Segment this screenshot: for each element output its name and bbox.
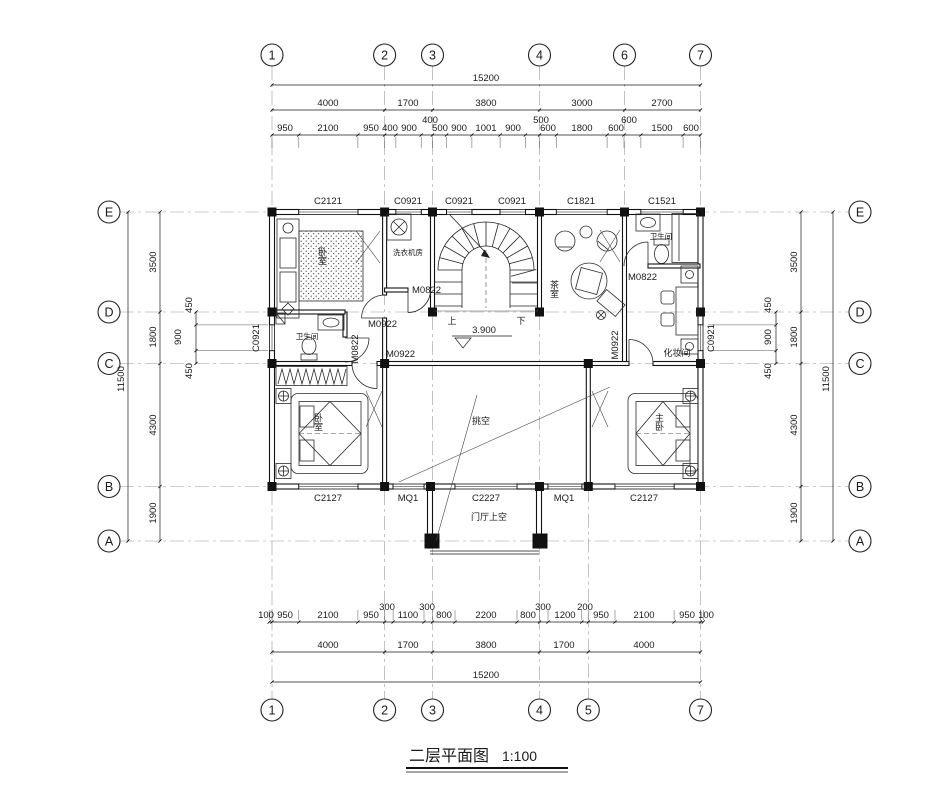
dim: 3500 (148, 251, 159, 272)
room-label-dressing: 化妆间 (663, 347, 690, 358)
room-label-bedroom-top-left: 卧室 (317, 246, 327, 265)
dim: 4300 (148, 414, 159, 435)
room-label-void: 挑空 (472, 415, 490, 426)
door-label: M0822 (412, 285, 441, 296)
dim: 4000 (317, 640, 338, 651)
stair-down-label: 下 (516, 316, 525, 326)
room-label-laundry: 洗衣机房 (393, 247, 423, 257)
dim: 2700 (651, 98, 672, 109)
axis-left-D: D (104, 306, 113, 320)
door-label: M0822 (628, 272, 657, 283)
axis-top-2: 2 (381, 49, 388, 63)
window-label: C0921 (498, 196, 526, 207)
dim: 3800 (475, 98, 496, 109)
dimension-texts: 15200 4000 1700 3800 3000 2700 950 2100 … (116, 73, 832, 681)
dim: 1100 (398, 610, 418, 621)
dim: 950 (363, 610, 379, 621)
dim: 900 (763, 329, 774, 345)
axis-top-3: 3 (429, 49, 436, 63)
door-bedroom-top-left (362, 295, 385, 318)
axis-top-6: 6 (621, 49, 628, 63)
stair-up-label: 上 (447, 316, 456, 326)
door-bedroom-bottom-left (352, 364, 377, 389)
axis-top-1: 1 (269, 49, 276, 63)
window-label: C0921 (706, 324, 717, 352)
dim: 1800 (148, 326, 159, 347)
dim: 600 (683, 123, 699, 134)
floor-plan-canvas: 15200 4000 1700 3800 3000 2700 950 2100 … (0, 0, 941, 799)
dim: 200 (577, 602, 593, 613)
axis-top-4: 4 (536, 49, 543, 63)
dim: 450 (184, 297, 195, 313)
dim: 1700 (397, 640, 418, 651)
dimension-lines (128, 85, 833, 682)
dim: 1900 (789, 502, 800, 523)
dim: 1001 (475, 123, 496, 134)
window-label: C2121 (314, 196, 342, 207)
drawing-title: 二层平面图 1:100 (406, 748, 568, 772)
room-label-master-bedroom: 主卧 (654, 412, 664, 432)
dim: 2200 (475, 610, 496, 621)
dim: 1800 (571, 123, 592, 134)
dim: 300 (379, 602, 395, 613)
window-label: C0921 (251, 324, 262, 352)
axis-right-A: A (856, 535, 865, 549)
dim: 100 (698, 610, 714, 621)
dim: 300 (419, 602, 435, 613)
furniture-dressing-room (661, 266, 698, 354)
dim: 950 (277, 123, 293, 134)
axis-bottom-2: 2 (381, 704, 388, 718)
window-label: C2127 (630, 493, 658, 504)
dim: 950 (679, 610, 695, 621)
staircase (434, 215, 538, 311)
axis-right-B: B (856, 480, 864, 494)
furniture-bedroom-top-left (277, 219, 380, 318)
dim: 900 (401, 123, 417, 134)
dim: 900 (173, 329, 184, 345)
dim: 900 (505, 123, 521, 134)
room-label-tea-room: 茶室 (549, 279, 559, 298)
dim: 3800 (475, 640, 496, 651)
dim: 1200 (554, 610, 575, 621)
room-label-bath-left: 卫生间 (296, 331, 319, 341)
dim: 400 (382, 123, 398, 134)
axis-bottom-3: 3 (429, 704, 436, 718)
elevation-label: 3.900 (472, 325, 496, 336)
dim: 3500 (789, 251, 800, 272)
dim: 450 (763, 297, 774, 313)
door-bath-right (624, 242, 648, 266)
room-label-bedroom-bottom-left: 卧室 (313, 412, 323, 431)
dim: 2100 (317, 610, 338, 621)
furniture-laundry (387, 214, 411, 240)
room-label-bath-right: 卫生间 (650, 231, 673, 241)
dim-bottom-overall: 15200 (473, 670, 499, 681)
grid-lines (120, 66, 849, 699)
door-label: M0922 (610, 330, 621, 359)
stair-annotations: 上 下 3.900 (447, 316, 525, 336)
dim: 4300 (789, 414, 800, 435)
dim: 950 (277, 610, 293, 621)
dim: 1800 (789, 326, 800, 347)
window-label: MQ1 (398, 493, 419, 504)
axis-top-7: 7 (697, 49, 704, 63)
axis-right-C: C (855, 357, 864, 371)
room-label-foyer-void: 门厅上空 (471, 511, 507, 522)
axis-right-E: E (856, 206, 864, 220)
floor-plan-page: 15200 4000 1700 3800 3000 2700 950 2100 … (0, 0, 941, 799)
door-dressing-room (629, 340, 653, 364)
dim: 800 (436, 610, 452, 621)
dim: 950 (363, 123, 379, 134)
axis-bottom-4: 4 (536, 704, 543, 718)
dim: 450 (763, 363, 774, 379)
dim-right-overall: 11500 (821, 366, 832, 392)
axis-left-B: B (105, 480, 113, 494)
dim: 900 (451, 123, 467, 134)
furniture-bedroom-bottom-left (276, 367, 382, 479)
dim: 4000 (317, 98, 338, 109)
window-label: C0921 (445, 196, 473, 207)
door-label: M0922 (368, 319, 397, 330)
window-label: C2127 (314, 493, 342, 504)
dim: 1700 (553, 640, 574, 651)
dim: 100 (258, 610, 274, 621)
furniture-bedroom-bottom-right (592, 389, 698, 479)
dim-top-overall: 15200 (473, 73, 499, 84)
dim: 600 (540, 123, 556, 134)
axis-left-E: E (105, 206, 113, 220)
axis-left-A: A (105, 535, 114, 549)
dim: 1500 (651, 123, 672, 134)
window-label: MQ1 (554, 493, 575, 504)
axis-bottom-1: 1 (269, 704, 276, 718)
dim: 1700 (397, 98, 418, 109)
dim: 3000 (571, 98, 592, 109)
dim: 4000 (633, 640, 654, 651)
doors (345, 242, 653, 389)
axis-bottom-7: 7 (697, 704, 704, 718)
window-label: C1521 (648, 196, 676, 207)
axis-bottom-5: 5 (585, 704, 592, 718)
furniture-tea-room (555, 226, 625, 320)
title-scale: 1:100 (502, 748, 537, 764)
door-label: M0922 (386, 349, 415, 360)
dim: 1900 (148, 502, 159, 523)
dim: 500 (432, 123, 448, 134)
window-label: C1821 (567, 196, 595, 207)
dim: 950 (593, 610, 609, 621)
dim: 300 (535, 602, 551, 613)
axis-right-D: D (855, 306, 864, 320)
axis-left-C: C (104, 357, 113, 371)
dim: 450 (184, 363, 195, 379)
title-text: 二层平面图 (409, 748, 489, 765)
window-label: C2227 (472, 493, 500, 504)
dim: 2100 (633, 610, 654, 621)
dim: 2100 (317, 123, 338, 134)
door-label: M0822 (350, 334, 361, 363)
dim: 600 (621, 115, 637, 126)
dim: 800 (520, 610, 536, 621)
window-label: C0921 (394, 196, 422, 207)
